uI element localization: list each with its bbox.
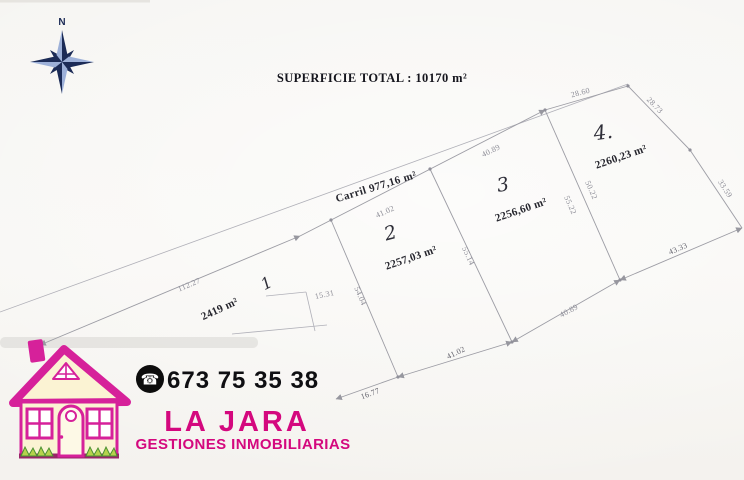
road-lines xyxy=(0,84,628,345)
dim-road-left: 112.27 xyxy=(176,276,201,293)
plot1-number: 1 xyxy=(257,272,275,294)
phone-icon-glyph: ☎ xyxy=(141,371,160,389)
dim-plot3-bottom: 40.89 xyxy=(558,302,579,319)
total-surface-title: SUPERFICIE TOTAL : 10170 m² xyxy=(277,71,467,85)
house-icon xyxy=(13,339,127,459)
dim-plot4-bottom: 43.33 xyxy=(667,241,688,257)
dim-plot3-top: 40.89 xyxy=(480,142,501,159)
dim-plot2-bottom: 41.02 xyxy=(445,344,466,361)
plot3-number: 3 xyxy=(495,173,511,197)
dim-divider-3-4-right: 50.22 xyxy=(583,179,599,200)
phone-row: ☎ 673 75 35 38 xyxy=(136,365,319,394)
plot3-area: 2256,60 m² xyxy=(494,196,549,225)
compass-north-label: N xyxy=(58,17,65,28)
dim-plot4-right: 33.59 xyxy=(716,178,734,199)
dim-plot2-top: 41.02 xyxy=(374,204,395,220)
plot4-number: 4. xyxy=(591,119,614,146)
road-upper-edge xyxy=(0,84,628,312)
scanned-land-survey-page: SUPERFICIE TOTAL : 10170 m² N xyxy=(0,0,744,480)
plot1-area: 2419 m² xyxy=(199,295,240,323)
road-lower-edge xyxy=(40,236,300,345)
plot1-right-edge xyxy=(306,292,315,331)
scan-edge-artifact xyxy=(0,0,150,3)
dim-plot4-top-right: 28.73 xyxy=(645,95,665,115)
brand-name: LA JARA xyxy=(164,406,310,438)
dim-divider-2-3: 55.14 xyxy=(460,245,476,266)
plot2-area: 2257,03 m² xyxy=(384,244,439,273)
plot4-top-right-edge xyxy=(628,86,690,150)
plot4-bottom-edge xyxy=(620,228,742,280)
site-plan: SUPERFICIE TOTAL : 10170 m² N xyxy=(0,0,744,480)
dim-bottom-left-end: 16.77 xyxy=(359,386,380,401)
plot4-area: 2260,23 m² xyxy=(594,143,649,172)
dim-divider-1-2: 54.04 xyxy=(352,285,368,306)
road-label: Carril 977,16 m² xyxy=(334,169,418,205)
dimension-labels: 112.27 41.02 40.89 28.60 28.73 33.59 43.… xyxy=(176,86,734,401)
phone-number: 673 75 35 38 xyxy=(167,367,319,394)
plot1-notch-edge xyxy=(266,292,306,296)
compass-rose-icon xyxy=(30,30,94,94)
dim-divider-3-4-left: 55.22 xyxy=(562,194,578,215)
plot1-bottom-edge xyxy=(232,325,327,334)
plot-labels: 1 2419 m² 2 2257,03 m² 3 2256,60 m² 4. 2… xyxy=(199,119,648,323)
plot4-right-edge xyxy=(690,150,742,228)
brand-tagline: GESTIONES INMOBILIARIAS xyxy=(135,436,350,453)
dim-plot1-right: 15.31 xyxy=(314,288,335,301)
plot-boundary-lines xyxy=(232,86,742,399)
plot2-number: 2 xyxy=(381,221,399,246)
agency-logo: ☎ 673 75 35 38 LA JARA GESTIONES INMOBIL… xyxy=(13,339,351,459)
